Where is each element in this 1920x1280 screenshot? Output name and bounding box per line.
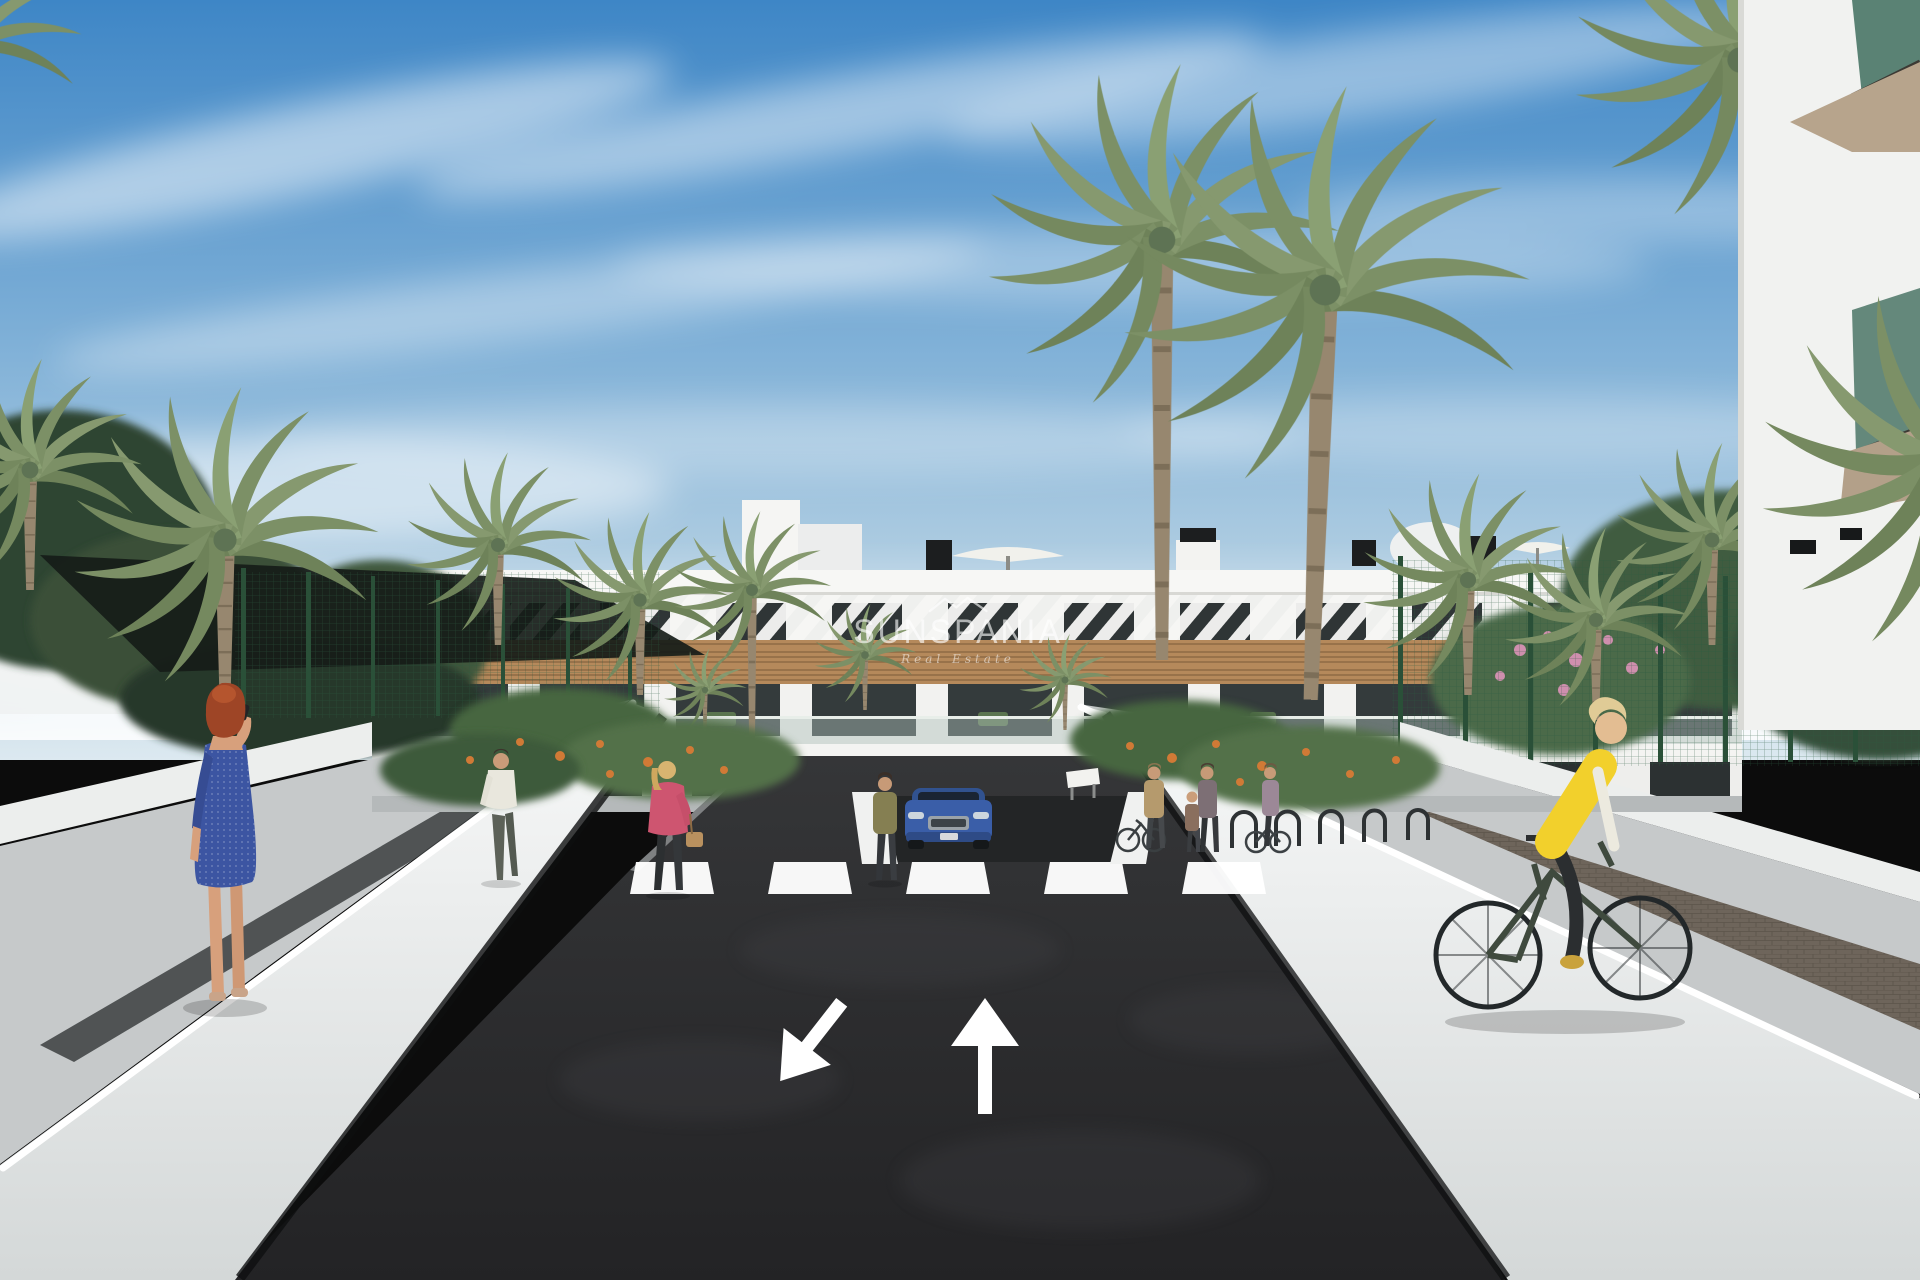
roof-vent — [926, 540, 952, 570]
wall-sconce — [1840, 528, 1862, 540]
roof-vent — [1352, 540, 1376, 566]
roof-volume — [798, 524, 862, 574]
roof-vent — [1180, 528, 1216, 542]
scene-render — [0, 0, 1920, 1280]
wall-sconce — [1790, 540, 1816, 554]
blue-suv — [905, 788, 992, 849]
render-viewport: SUNSPANIA Real Estate — [0, 0, 1920, 1280]
